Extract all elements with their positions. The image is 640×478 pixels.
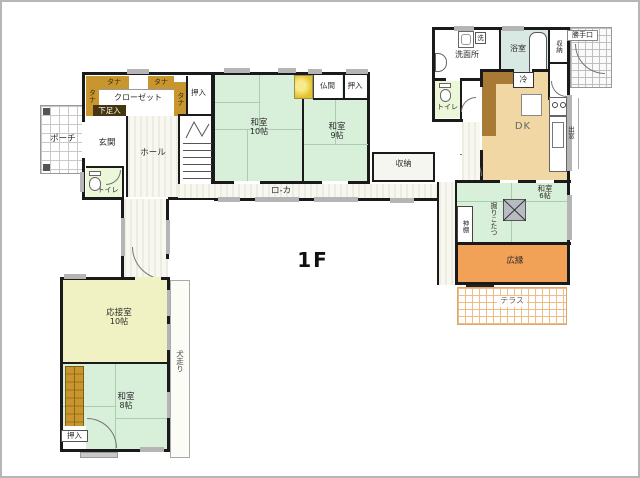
hallway-floor (462, 122, 480, 182)
tatami-line (215, 102, 259, 103)
window (567, 195, 572, 240)
partition-line (74, 366, 75, 427)
oshiire-label: 押入 (61, 430, 88, 442)
genkan-label: 玄関 (90, 138, 124, 149)
hiroen-label: 広縁 (501, 256, 529, 266)
bathroom-label: 浴室 (504, 44, 532, 54)
wall (178, 116, 180, 184)
porch-label: ポーチ (40, 105, 86, 174)
tana-shelf: タナ (148, 76, 174, 89)
wall (313, 98, 367, 100)
washitsu6-size: 6帖 (535, 193, 555, 201)
wall (455, 245, 458, 285)
door-gap (135, 277, 161, 280)
tatami-line (115, 418, 167, 419)
window (314, 197, 358, 202)
window (140, 447, 164, 452)
washitsu8-size: 8帖 (116, 402, 136, 411)
corridor-floor (178, 184, 460, 198)
wall (480, 69, 483, 87)
burner (560, 102, 566, 108)
window (346, 69, 368, 74)
window (224, 68, 250, 73)
oshiire-label: 押入 (186, 88, 211, 98)
dk-table (521, 94, 542, 116)
dk-label: DK (511, 121, 535, 133)
window (278, 68, 296, 73)
washitsu9-size: 9帖 (326, 132, 348, 141)
washroom-label: 洗面所 (446, 50, 488, 60)
bay-window-outline (578, 98, 579, 169)
tatami-line (304, 144, 368, 145)
wall (86, 166, 124, 168)
toilet-tank (89, 171, 101, 176)
window (255, 197, 299, 202)
kotatsu-x-mark (503, 199, 526, 221)
kamidana-label: 神棚 (460, 211, 470, 241)
tokonoma-alcove (294, 75, 313, 99)
stair-step (183, 157, 212, 158)
corridor-label: ロ-カ (263, 186, 299, 196)
wall (548, 64, 550, 100)
wall (82, 197, 124, 200)
stair-step (183, 150, 212, 151)
washing-machine-drum (461, 34, 471, 45)
bay-window-label: 出窓 (566, 116, 575, 148)
oshiire-label: 押入 (343, 81, 367, 91)
window (166, 220, 170, 254)
wall (480, 69, 514, 72)
horigotatsu-label: 掘りこたつ (488, 196, 498, 242)
wall (178, 114, 214, 116)
door-arc (461, 97, 476, 112)
toilet-bowl (440, 89, 451, 102)
sink (435, 53, 447, 72)
reception-size: 10帖 (107, 318, 131, 327)
terrace-label: テラス (497, 296, 527, 307)
burner (552, 102, 558, 108)
hall-label: ホール (128, 148, 178, 159)
toilet-label: トイレ (94, 186, 122, 195)
floor-title: 1F (291, 248, 335, 272)
stair-step (183, 178, 212, 179)
refrigerator: 冷 (513, 72, 534, 88)
storage-room: 収納 (372, 152, 435, 182)
stair-step (183, 143, 212, 144)
window (390, 198, 414, 203)
stair-step (183, 171, 212, 172)
toilet-tank (439, 83, 451, 88)
butsuma-label: 仏間 (313, 81, 342, 91)
window (127, 69, 149, 74)
closet-label: クローゼット (102, 92, 174, 104)
kitchen-sink (552, 122, 564, 148)
partition-line (99, 89, 174, 90)
wall (122, 168, 124, 197)
washer-label: 洗 (475, 32, 486, 44)
wall (432, 119, 463, 122)
window (218, 197, 240, 202)
tana-shelf: タナ (99, 76, 129, 89)
wall (460, 81, 462, 121)
shoe-storage: 下足入 (93, 105, 126, 116)
inubashiri-label: 犬走り (174, 340, 186, 382)
window (308, 69, 322, 74)
window (64, 274, 86, 279)
window (80, 172, 84, 192)
kitchen-counter (482, 72, 496, 136)
washitsu10-size: 10帖 (244, 128, 274, 137)
storage-top-label: 収納 (553, 32, 564, 60)
floor-plan: ポーチ タナ タナ タナ タナ クローゼット 押入 UP 下足入 玄関 ホール … (0, 0, 640, 478)
stair-turn-mark (183, 117, 211, 141)
back-door-label: 勝手口 (567, 30, 598, 41)
window (121, 218, 125, 256)
entry-step (80, 452, 118, 458)
wall (567, 245, 570, 285)
window (502, 26, 524, 31)
genkan-door-gap (82, 122, 85, 158)
stair-step (183, 164, 212, 165)
wall (437, 182, 439, 285)
toilet-label: トイレ (434, 103, 461, 112)
